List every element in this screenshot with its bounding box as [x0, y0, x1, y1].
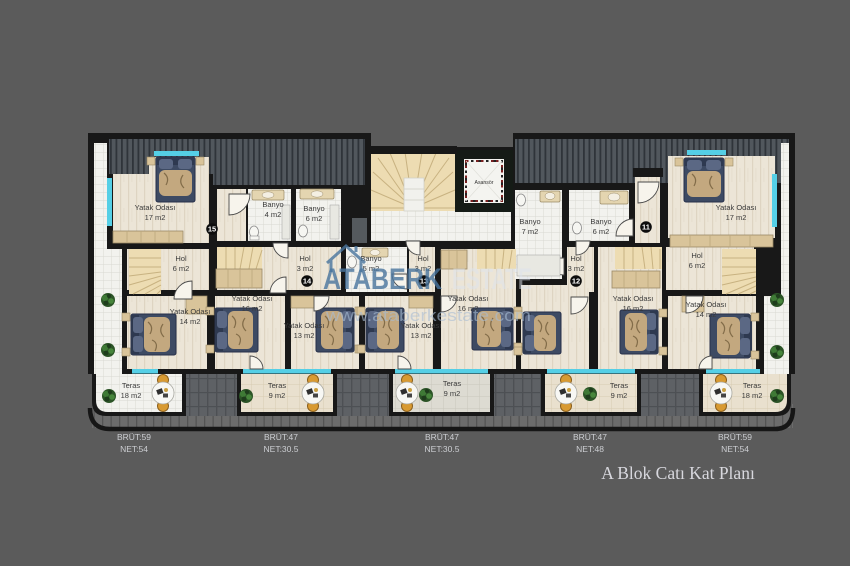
svg-text:9 m2: 9 m2: [269, 391, 286, 400]
svg-text:Teras: Teras: [122, 381, 141, 390]
svg-text:Yatak Odası: Yatak Odası: [232, 294, 273, 303]
svg-text:BRÜT:59: BRÜT:59: [117, 432, 151, 442]
svg-text:Banyo: Banyo: [590, 217, 611, 226]
svg-text:www.ataberkestate.com: www.ataberkestate.com: [325, 306, 531, 325]
svg-text:BRÜT:47: BRÜT:47: [425, 432, 459, 442]
svg-text:A Blok Catı Kat Planı: A Blok Catı Kat Planı: [601, 463, 755, 483]
svg-text:Yatak Odası: Yatak Odası: [284, 321, 325, 330]
svg-text:Hol: Hol: [299, 254, 311, 263]
svg-text:13 m2: 13 m2: [294, 331, 315, 340]
svg-text:4 m2: 4 m2: [265, 210, 282, 219]
svg-text:Hol: Hol: [417, 254, 429, 263]
svg-text:9 m2: 9 m2: [444, 389, 461, 398]
svg-text:18 m2: 18 m2: [121, 391, 142, 400]
svg-text:Teras: Teras: [443, 379, 462, 388]
svg-text:Teras: Teras: [743, 381, 762, 390]
svg-text:6 m2: 6 m2: [306, 214, 323, 223]
svg-text:NET:48: NET:48: [576, 444, 604, 454]
svg-text:14 m2: 14 m2: [696, 310, 717, 319]
svg-text:3 m2: 3 m2: [297, 264, 314, 273]
svg-text:NET:54: NET:54: [120, 444, 148, 454]
svg-text:16 m2: 16 m2: [623, 304, 644, 313]
svg-text:6 m2: 6 m2: [689, 261, 706, 270]
svg-text:ATABERK: ATABERK: [323, 263, 442, 296]
svg-text:18 m2: 18 m2: [742, 391, 763, 400]
svg-text:Hol: Hol: [691, 251, 703, 260]
svg-text:BRÜT:47: BRÜT:47: [264, 432, 298, 442]
svg-text:11: 11: [642, 223, 650, 232]
svg-text:NET:30.5: NET:30.5: [264, 444, 299, 454]
svg-text:Yatak Odası: Yatak Odası: [686, 300, 727, 309]
svg-text:15: 15: [208, 225, 216, 234]
svg-text:12: 12: [572, 277, 580, 286]
svg-text:16 m2: 16 m2: [242, 304, 263, 313]
svg-text:NET:30.5: NET:30.5: [425, 444, 460, 454]
svg-text:Banyo: Banyo: [519, 217, 540, 226]
svg-text:Yatak Odası: Yatak Odası: [613, 294, 654, 303]
svg-text:6 m2: 6 m2: [173, 264, 190, 273]
svg-text:13 m2: 13 m2: [411, 331, 432, 340]
svg-text:Hol: Hol: [570, 254, 582, 263]
svg-text:Teras: Teras: [268, 381, 287, 390]
svg-text:BRÜT:47: BRÜT:47: [573, 432, 607, 442]
svg-text:Teras: Teras: [610, 381, 629, 390]
svg-text:Banyo: Banyo: [262, 200, 283, 209]
svg-text:6 m2: 6 m2: [593, 227, 610, 236]
svg-text:3 m2: 3 m2: [568, 264, 585, 273]
svg-text:ESTATE: ESTATE: [452, 263, 532, 296]
svg-text:Yatak Odası: Yatak Odası: [716, 203, 757, 212]
svg-text:9 m2: 9 m2: [611, 391, 628, 400]
svg-text:NET:54: NET:54: [721, 444, 749, 454]
svg-text:14 m2: 14 m2: [180, 317, 201, 326]
svg-text:Banyo: Banyo: [303, 204, 324, 213]
svg-text:17 m2: 17 m2: [726, 213, 747, 222]
svg-text:7 m2: 7 m2: [522, 227, 539, 236]
svg-text:Yatak Odası: Yatak Odası: [135, 203, 176, 212]
svg-text:17 m2: 17 m2: [145, 213, 166, 222]
svg-text:14: 14: [303, 277, 312, 286]
svg-text:BRÜT:59: BRÜT:59: [718, 432, 752, 442]
svg-text:Asansör: Asansör: [474, 180, 493, 186]
svg-text:Yatak Odası: Yatak Odası: [170, 307, 211, 316]
svg-text:Hol: Hol: [175, 254, 187, 263]
